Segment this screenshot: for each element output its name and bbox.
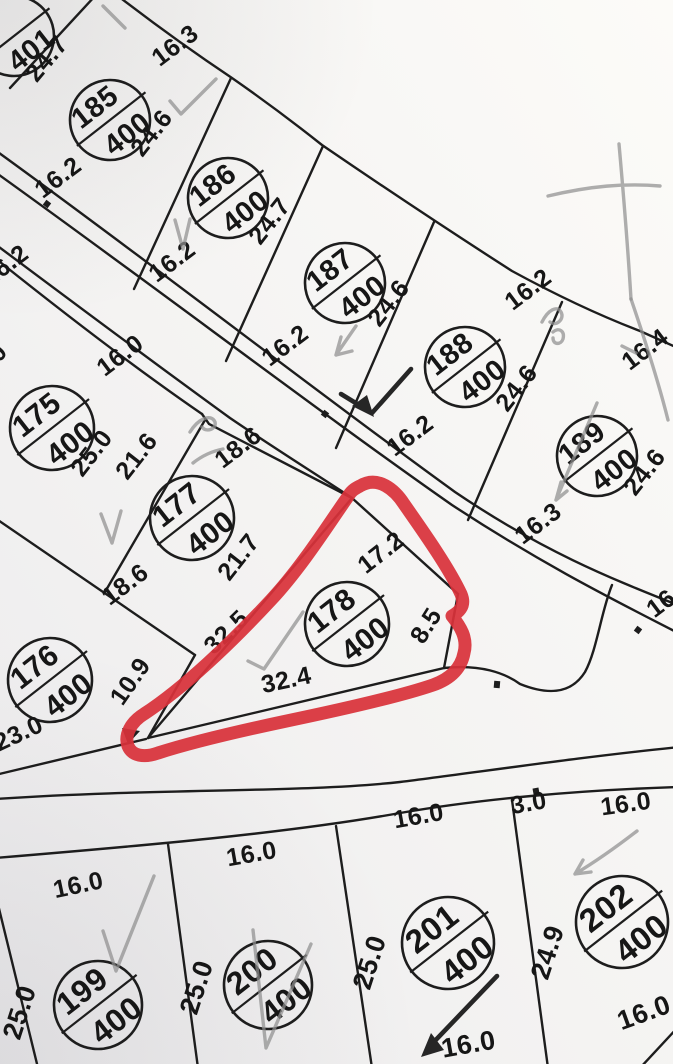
survey-tick <box>494 681 501 688</box>
cadastral-map-photo: 4011854001864001874001884001894001754001… <box>0 0 673 1064</box>
map-canvas: 4011854001864001874001884001894001754001… <box>0 0 673 1064</box>
